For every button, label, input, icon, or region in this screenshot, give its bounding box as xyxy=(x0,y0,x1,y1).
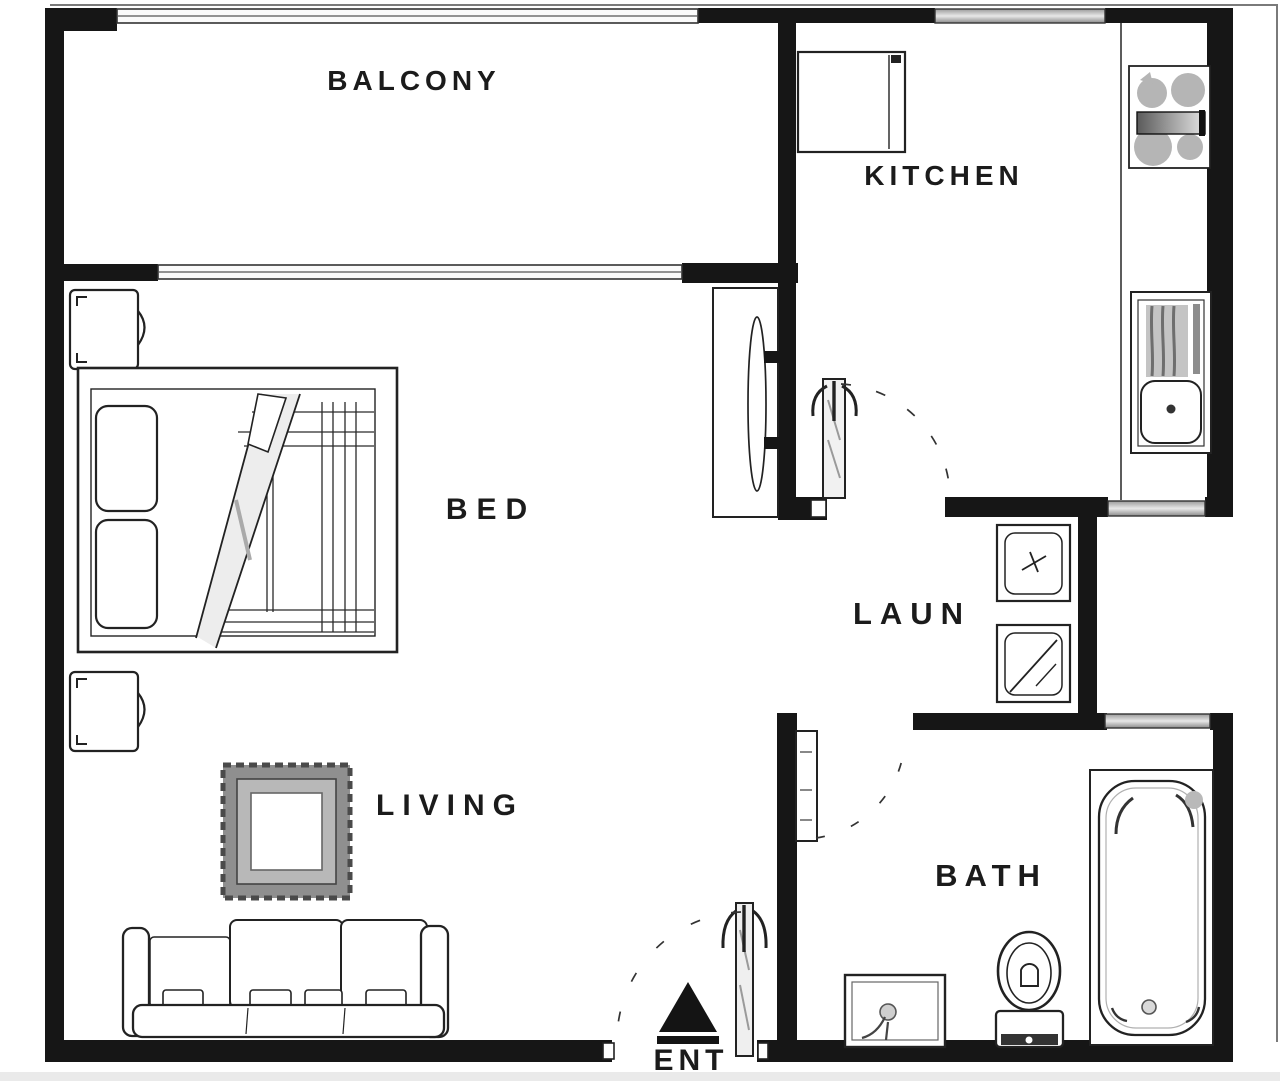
kitchen-door xyxy=(813,379,856,498)
nightstand-bottom xyxy=(70,672,145,751)
living-label: LIVING xyxy=(376,789,524,823)
dryer xyxy=(997,625,1070,702)
pillow xyxy=(96,406,157,511)
kitchen-label: KITCHEN xyxy=(864,160,1023,192)
entry-door xyxy=(723,903,766,1056)
wall-top-left-corner xyxy=(45,8,117,31)
vanity-sink xyxy=(845,975,945,1047)
sofa xyxy=(123,920,448,1037)
rug xyxy=(223,765,350,898)
wall-bath-left xyxy=(777,713,797,1062)
wall-bath-top xyxy=(913,713,1107,730)
bath-window xyxy=(1105,714,1210,728)
fridge xyxy=(798,52,905,152)
balcony-bottom-window xyxy=(158,265,682,279)
toilet xyxy=(996,932,1063,1047)
kitchen-door-swing-arc xyxy=(841,384,950,500)
cooktop xyxy=(1129,66,1210,168)
kitchen-top-window xyxy=(935,9,1105,23)
balcony-label: BALCONY xyxy=(327,65,500,97)
washer xyxy=(997,525,1070,601)
laundry-label: LAUN xyxy=(853,596,971,632)
bath-door-swing-arc xyxy=(816,736,905,838)
wall-bottom-left xyxy=(45,1040,612,1062)
entry-arrow xyxy=(657,982,719,1044)
wall-right-lower xyxy=(1213,713,1233,1062)
wall-balcony-divider-left xyxy=(45,264,158,281)
balcony-top-window xyxy=(117,9,698,23)
pillow xyxy=(96,520,157,628)
wall-kitchen-laundry-corner xyxy=(1205,497,1233,517)
wall-kitchen-laundry xyxy=(945,497,1108,517)
cooktop-control-band xyxy=(1137,112,1205,134)
bath-door xyxy=(796,731,817,841)
kitchen-sink xyxy=(1131,292,1211,453)
bath-label: BATH xyxy=(935,858,1047,894)
wall-top-middle xyxy=(698,8,935,23)
bed-label: BED xyxy=(446,493,536,527)
wardrobe xyxy=(713,288,783,517)
bathtub xyxy=(1090,770,1213,1045)
kitchen-laundry-window xyxy=(1108,501,1205,516)
image-bottom-edge xyxy=(0,1072,1280,1081)
double-bed xyxy=(78,368,397,652)
floor-plan: BALCONY KITCHEN BED LAUN LIVING BATH ENT xyxy=(0,0,1280,1081)
wall-laundry-right xyxy=(1078,517,1097,728)
floor-plan-drawing xyxy=(0,0,1280,1081)
wall-left xyxy=(45,8,64,1062)
nightstand-top xyxy=(70,290,145,369)
